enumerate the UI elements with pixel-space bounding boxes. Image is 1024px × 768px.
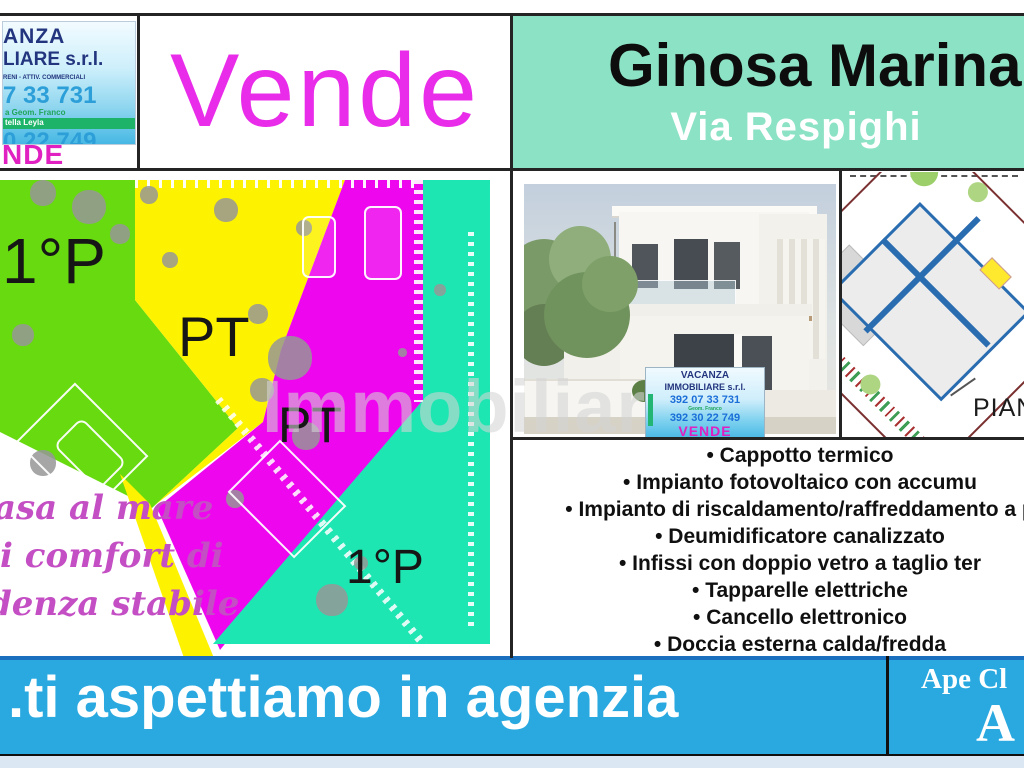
- card-name-line2: IMMOBILIARE s.r.l.: [646, 382, 764, 392]
- border-photo-plan: [839, 171, 842, 440]
- feature-item: Infissi con doppio vetro a taglio ter: [511, 550, 1024, 577]
- bottom-strip: [0, 756, 1024, 768]
- tree-blob: [316, 584, 348, 616]
- tree-blob: [398, 348, 407, 357]
- footer-message: .ti aspettiamo in agenzia: [8, 664, 678, 731]
- agency-vende-fragment: NDE: [2, 139, 64, 171]
- car-outline: [364, 206, 402, 280]
- tree-blob: [110, 224, 130, 244]
- border-center-vertical: [510, 13, 513, 658]
- feature-item: Deumidificatore canalizzato: [511, 523, 1024, 550]
- location-header: Ginosa Marina Via Respighi: [513, 13, 1024, 168]
- plan-label-teal: 1°P: [346, 540, 424, 595]
- vende-title: Vende: [140, 32, 510, 151]
- agency-phone-1: 7 33 731: [3, 82, 136, 110]
- agency-agent-2: tella Leyla: [5, 118, 44, 127]
- tree-blob: [140, 186, 158, 204]
- feature-item: Impianto di riscaldamento/raffreddamento…: [511, 496, 1024, 523]
- agency-logo-box: ANZA LIARE s.r.l. RENI - ATTIV. COMMERCI…: [0, 13, 137, 168]
- card-phone-1: 392 07 33 731: [646, 394, 764, 406]
- border-features-top: [510, 437, 1024, 440]
- tree-blob: [12, 324, 34, 346]
- feature-item: Tapparelle elettriche: [511, 577, 1024, 604]
- agency-name-line2: LIARE s.r.l.: [3, 49, 136, 71]
- ape-class: A: [976, 692, 1015, 754]
- tree: [582, 256, 638, 312]
- tree-blob: [72, 190, 106, 224]
- plan-label-yellow: PT: [178, 304, 250, 369]
- tree-blob: [434, 284, 446, 296]
- plan-label-green: 1°P: [2, 224, 106, 298]
- card-name-line1: VACANZA: [646, 370, 764, 381]
- caption-line-3: denza stabile: [0, 584, 239, 624]
- feature-item: Cancello elettronico: [511, 604, 1024, 631]
- detail-plan-panel: PIAN: [842, 172, 1024, 437]
- agency-logo-card: ANZA LIARE s.r.l. RENI - ATTIV. COMMERCI…: [2, 21, 136, 145]
- agency-name-line1: ANZA: [3, 25, 135, 49]
- location-title: Ginosa Marina: [608, 31, 1021, 100]
- detail-plan-label: PIAN: [973, 394, 1024, 423]
- photo-agency-card: VACANZA IMMOBILIARE s.r.l. 392 07 33 731…: [645, 367, 765, 439]
- feature-item: Doccia esterna calda/fredda: [511, 631, 1024, 658]
- tree-blob: [214, 198, 238, 222]
- border-logo-right: [137, 13, 140, 171]
- ape-box-divider: [886, 656, 889, 756]
- caption-line-2: i comfort di: [0, 536, 224, 576]
- feature-item: Impianto fotovoltaico con accumu: [511, 469, 1024, 496]
- features-list: Cappotto termico Impianto fotovoltaico c…: [511, 442, 1024, 658]
- plan-hatch-top: [135, 180, 420, 188]
- tree-blob: [248, 304, 268, 324]
- flyer-canvas: ANZA LIARE s.r.l. RENI - ATTIV. COMMERCI…: [0, 0, 1024, 768]
- caption-line-1: asa al mare: [0, 488, 213, 528]
- tree-blob: [30, 180, 56, 206]
- tree-blob: [162, 252, 178, 268]
- agency-agent-1: a Geom. Franco: [5, 108, 65, 117]
- agency-services-line: RENI - ATTIV. COMMERCIALI: [3, 75, 136, 81]
- location-subtitle: Via Respighi: [513, 105, 1024, 150]
- car-outline: [302, 216, 336, 278]
